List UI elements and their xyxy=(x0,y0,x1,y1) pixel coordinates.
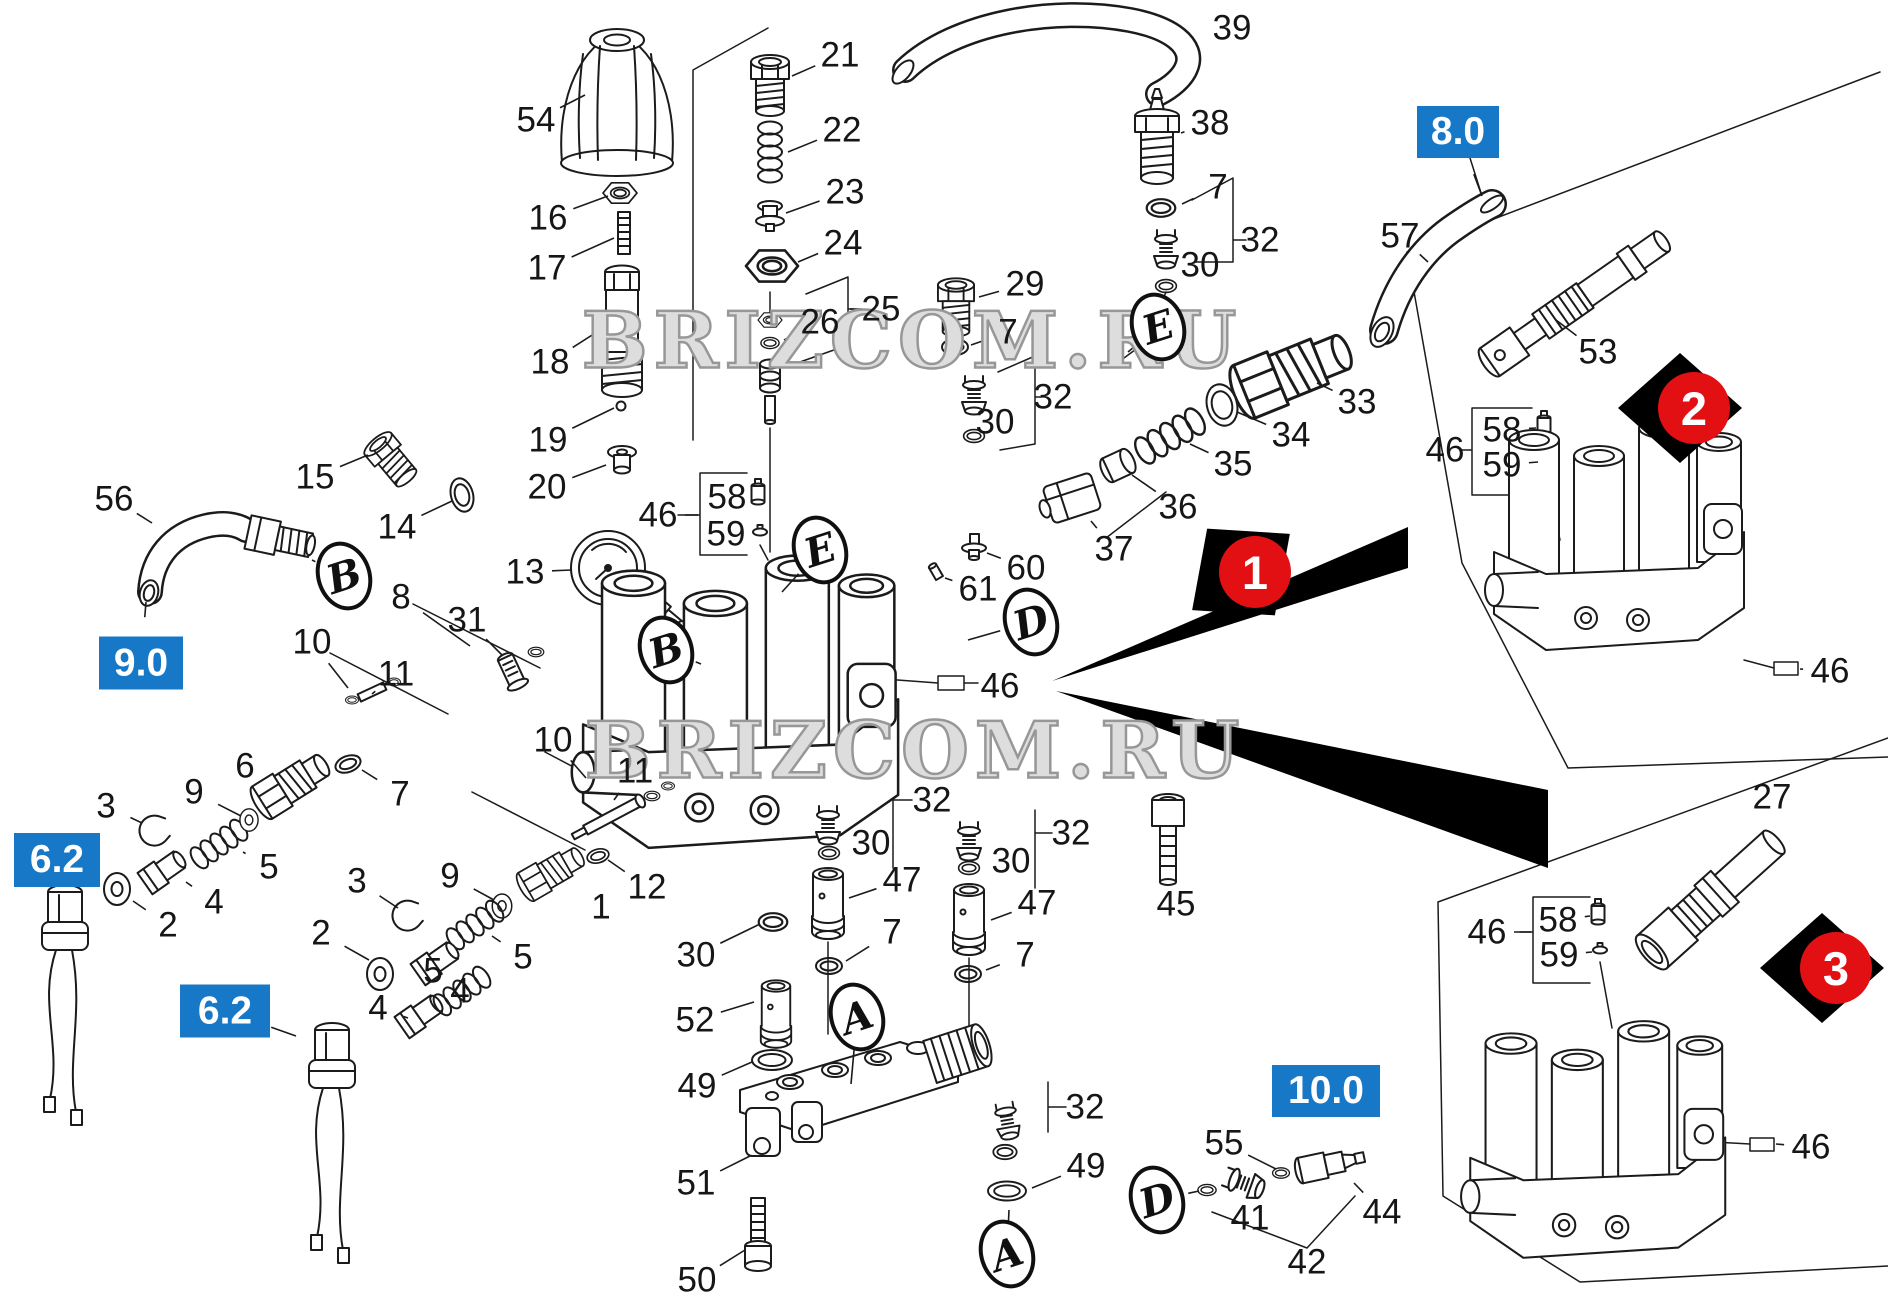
part-number-callout: 6 xyxy=(235,749,254,784)
part-number-callout: 30 xyxy=(1181,248,1220,283)
part-number-callout: 20 xyxy=(528,470,567,505)
part-number-callout: 50 xyxy=(678,1263,717,1298)
part-number-callout: 19 xyxy=(529,423,568,458)
section-reference-label: 6.2 xyxy=(180,985,270,1038)
part-number-callout: 21 xyxy=(821,38,860,73)
part-number-callout: 4 xyxy=(204,885,223,920)
part-number-callout: 39 xyxy=(1213,11,1252,46)
part-number-callout: 4 xyxy=(450,974,469,1009)
part-number-callout: 59 xyxy=(1540,938,1579,973)
part-number-callout: 52 xyxy=(676,1003,715,1038)
part-number-callout: 5 xyxy=(423,954,442,989)
part-number-callout: 49 xyxy=(678,1069,717,1104)
part-number-callout: 29 xyxy=(1006,267,1045,302)
part-number-callout: 53 xyxy=(1579,335,1618,370)
part-number-callout: 46 xyxy=(1426,433,1465,468)
part-number-callout: 9 xyxy=(184,775,203,810)
part-number-callout: 24 xyxy=(824,226,863,261)
part-number-callout: 46 xyxy=(981,669,1020,704)
part-number-callout: 46 xyxy=(1468,915,1507,950)
part-number-callout: 16 xyxy=(529,201,568,236)
part-number-callout: 32 xyxy=(913,783,952,818)
part-number-callout: 7 xyxy=(1208,170,1227,205)
part-number-callout: 32 xyxy=(1241,223,1280,258)
part-number-callout: 3 xyxy=(347,864,366,899)
section-reference-label: 10.0 xyxy=(1272,1065,1380,1117)
part-number-callout: 45 xyxy=(1157,887,1196,922)
part-number-callout: 60 xyxy=(1007,551,1046,586)
part-number-callout: 17 xyxy=(528,251,567,286)
part-number-callout: 7 xyxy=(1015,938,1034,973)
part-number-callout: 3 xyxy=(96,789,115,824)
part-number-callout: 58 xyxy=(1539,903,1578,938)
part-number-callout: 32 xyxy=(1052,816,1091,851)
part-number-callout: 11 xyxy=(617,754,653,789)
part-number-callout: 12 xyxy=(628,870,667,905)
part-number-callout: 7 xyxy=(998,315,1017,350)
connection-letter-tag: B xyxy=(629,608,703,692)
exploded-parts-diagram: BRIZCOM.RU BRIZCOM.RU 541617181920212223… xyxy=(0,0,1888,1306)
part-number-callout: 30 xyxy=(992,844,1031,879)
part-number-callout: 58 xyxy=(708,480,747,515)
part-number-callout: 7 xyxy=(390,777,409,812)
connection-letter-tag: D xyxy=(994,580,1068,664)
part-number-callout: 47 xyxy=(1018,886,1057,921)
part-number-callout: 10 xyxy=(534,723,573,758)
connection-letter-tag: A xyxy=(820,975,894,1059)
part-number-callout: 47 xyxy=(883,863,922,898)
part-number-callout: 33 xyxy=(1338,385,1377,420)
detail-view-arrow-marker: 3 xyxy=(1760,913,1884,1023)
section-reference-label: 9.0 xyxy=(99,637,183,690)
part-number-callout: 55 xyxy=(1205,1126,1244,1161)
part-number-callout: 22 xyxy=(823,113,862,148)
part-number-callout: 32 xyxy=(1034,380,1073,415)
part-number-callout: 51 xyxy=(677,1166,716,1201)
part-number-callout: 32 xyxy=(1066,1090,1105,1125)
part-number-callout: 42 xyxy=(1288,1245,1327,1280)
view-number-badge: 3 xyxy=(1800,932,1872,1004)
part-number-callout: 26 xyxy=(801,305,840,340)
connection-letter-tag: E xyxy=(1121,285,1195,369)
part-number-callout: 46 xyxy=(1792,1130,1831,1165)
section-reference-label: 8.0 xyxy=(1417,106,1499,158)
part-number-callout: 9 xyxy=(440,859,459,894)
part-number-callout: 38 xyxy=(1191,106,1230,141)
part-number-callout: 13 xyxy=(506,555,545,590)
part-number-callout: 8 xyxy=(391,580,410,615)
part-number-callout: 2 xyxy=(311,916,330,951)
view-number-badge: 2 xyxy=(1658,372,1730,444)
part-number-callout: 59 xyxy=(707,517,746,552)
part-number-callout: 57 xyxy=(1381,219,1420,254)
part-number-callout: 56 xyxy=(95,482,134,517)
detail-view-arrow-marker: 1 xyxy=(1179,517,1303,627)
connection-letter-tag: B xyxy=(307,534,381,618)
part-number-callout: 61 xyxy=(959,572,998,607)
part-number-callout: 59 xyxy=(1483,448,1522,483)
part-number-callout: 54 xyxy=(517,103,556,138)
part-number-callout: 23 xyxy=(826,175,865,210)
part-number-callout: 25 xyxy=(862,292,901,327)
part-number-callout: 44 xyxy=(1363,1195,1402,1230)
part-number-callout: 35 xyxy=(1214,447,1253,482)
part-number-callout: 18 xyxy=(531,345,570,380)
connection-letter-tag: E xyxy=(783,508,857,592)
view-number-badge: 1 xyxy=(1219,536,1291,608)
part-number-callout: 4 xyxy=(368,991,387,1026)
part-number-callout: 34 xyxy=(1272,418,1311,453)
part-number-callout: 14 xyxy=(378,510,417,545)
part-number-callout: 11 xyxy=(378,657,414,692)
part-number-callout: 2 xyxy=(158,908,177,943)
section-reference-label: 6.2 xyxy=(14,833,100,887)
callouts-layer: 5416171819202122232425262973230393873230… xyxy=(0,0,1888,1306)
part-number-callout: 1 xyxy=(591,890,610,925)
part-number-callout: 37 xyxy=(1095,532,1134,567)
part-number-callout: 31 xyxy=(448,603,487,638)
detail-view-arrow-marker: 2 xyxy=(1618,353,1742,463)
part-number-callout: 30 xyxy=(976,405,1015,440)
connection-letter-tag: D xyxy=(1120,1158,1194,1242)
connection-letter-tag: A xyxy=(970,1212,1044,1296)
part-number-callout: 58 xyxy=(1483,413,1522,448)
part-number-callout: 5 xyxy=(513,940,532,975)
part-number-callout: 30 xyxy=(852,826,891,861)
part-number-callout: 7 xyxy=(882,915,901,950)
part-number-callout: 46 xyxy=(639,498,678,533)
part-number-callout: 41 xyxy=(1231,1201,1270,1236)
part-number-callout: 49 xyxy=(1067,1149,1106,1184)
part-number-callout: 46 xyxy=(1811,654,1850,689)
part-number-callout: 10 xyxy=(293,625,332,660)
part-number-callout: 27 xyxy=(1753,780,1792,815)
part-number-callout: 5 xyxy=(259,850,278,885)
part-number-callout: 30 xyxy=(677,938,716,973)
part-number-callout: 15 xyxy=(296,460,335,495)
